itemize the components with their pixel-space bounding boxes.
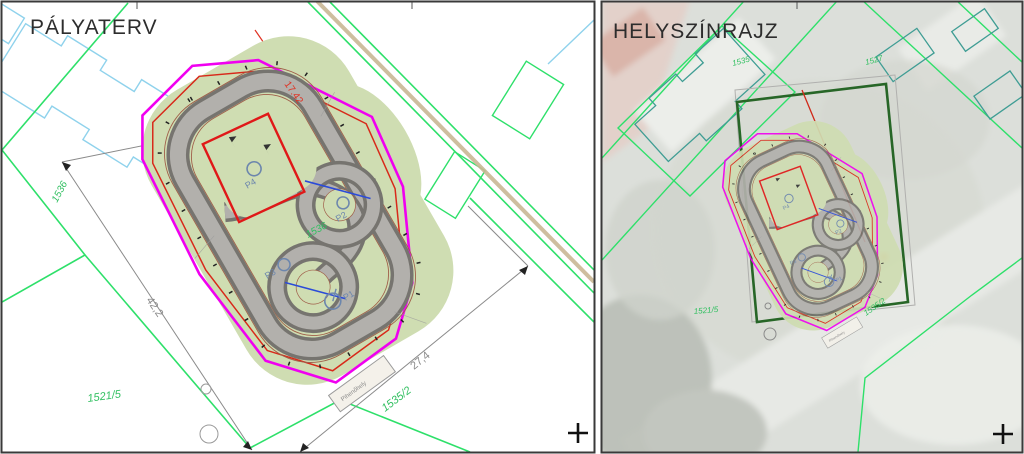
site-plan-svg: P4 P3 P2 P1 Pihenőhely <box>0 0 1024 454</box>
left-panel: 1536 1536 1521/5 1535/2 42,2 27,4 17.42 … <box>0 0 594 452</box>
drawing-sheet: P4 P3 P2 P1 Pihenőhely <box>0 0 1024 454</box>
right-panel: 1535 1527 1521/5 1535/2 HELYSZÍNRAJZ <box>568 0 1024 454</box>
left-panel-title: PÁLYATERV <box>30 16 158 39</box>
right-panel-title: HELYSZÍNRAJZ <box>613 20 779 43</box>
